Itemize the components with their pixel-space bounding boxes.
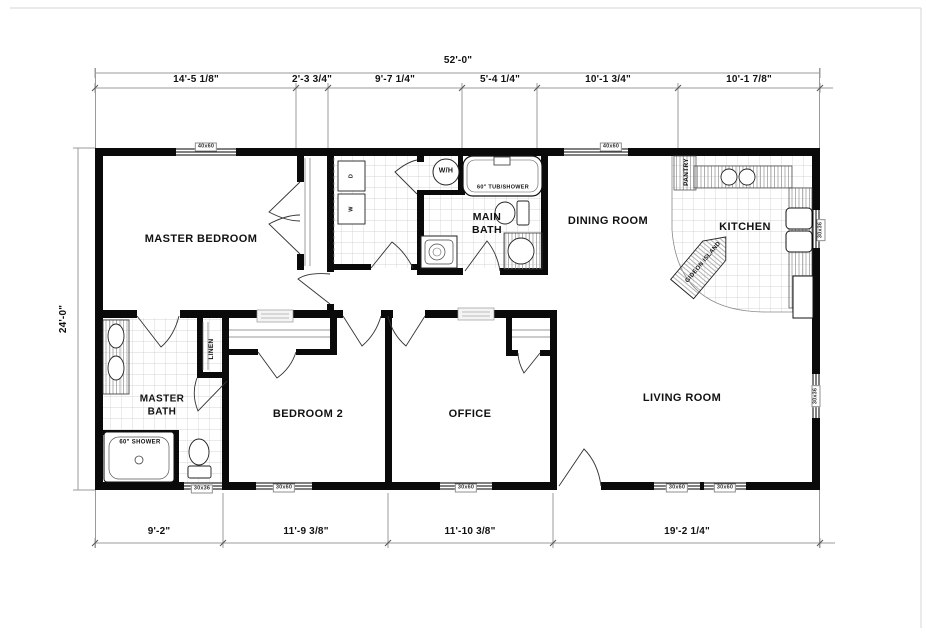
window-size-tag: 30x36: [817, 219, 826, 241]
window-size-tag: 30x36: [191, 485, 213, 494]
dim-top-seg-6: 10'-1 7/8": [726, 74, 772, 87]
dim-bottom-seg-4: 19'-2 1/4": [664, 526, 710, 539]
room-label-living-room: LIVING ROOM: [643, 392, 721, 406]
room-label-pantry: PANTRY: [683, 158, 691, 186]
floor-plan-page: 52'-0" 14'-5 1/8" 2'-3 3/4" 9'-7 1/4" 5'…: [0, 0, 926, 632]
dim-top-seg-5: 10'-1 3/4": [585, 74, 631, 87]
room-label-master-bath: MASTER BATH: [129, 394, 195, 419]
water-heater-label: W/H: [439, 168, 454, 177]
dim-top-seg-3: 9'-7 1/4": [375, 74, 415, 87]
window-size-tag: 30x36: [812, 385, 821, 407]
small-wall-tags: [257, 308, 494, 322]
shower-label: 60" SHOWER: [119, 439, 160, 447]
dim-overall-width: 52'-0": [444, 55, 472, 68]
dim-bottom-seg-2: 11'-9 3/8": [283, 526, 328, 539]
room-label-main-bath: MAIN BATH: [460, 211, 514, 237]
tile-floors: [103, 156, 812, 482]
dim-bottom-seg-3: 11'-10 3/8": [444, 526, 495, 539]
window-size-tag: 40x60: [600, 143, 622, 152]
window-size-tag: 30x60: [666, 484, 688, 493]
window-size-tag: 30x60: [273, 484, 295, 493]
room-label-linen: LINEN: [208, 339, 216, 360]
dim-top-seg-2: 2'-3 3/4": [292, 74, 332, 87]
window-size-tag: 40x60: [195, 143, 217, 152]
room-label-kitchen: KITCHEN: [719, 221, 771, 235]
window-size-tag: 30x60: [455, 484, 477, 493]
room-label-dining-room: DINING ROOM: [568, 215, 648, 229]
tub-shower-label: 60" TUB/SHOWER: [477, 185, 529, 192]
dryer-label: D: [348, 174, 355, 178]
dim-top-seg-1: 14'-5 1/8": [173, 74, 219, 87]
dim-bottom-seg-1: 9'-2": [148, 526, 171, 539]
room-label-bedroom-2: BEDROOM 2: [273, 408, 343, 422]
dim-top-seg-4: 5'-4 1/4": [480, 74, 520, 87]
room-label-master-bedroom: MASTER BEDROOM: [145, 233, 258, 247]
washer-label: W: [348, 206, 355, 212]
room-label-office: OFFICE: [449, 408, 492, 422]
window-size-tag: 30x60: [714, 484, 736, 493]
dim-overall-height: 24'-0": [58, 305, 71, 333]
